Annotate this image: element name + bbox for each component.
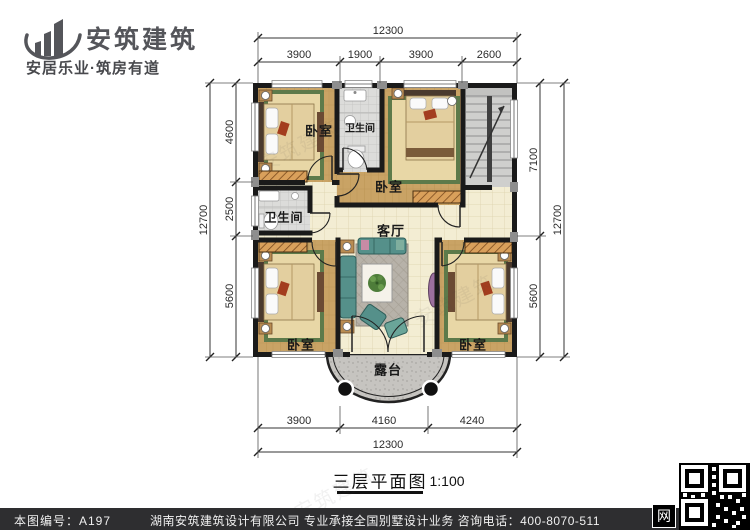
wardrobe (259, 241, 307, 252)
qr-code (679, 463, 750, 530)
bed-bottom-left (258, 250, 324, 340)
room-label-terrace: 露台 (374, 360, 402, 379)
dim-top-seg-2: 1900 (348, 49, 372, 61)
footer-drawing-number: 本图编号：A197 (14, 512, 111, 529)
dim-top-total: 12300 (373, 25, 404, 37)
dim-bottom-seg-3: 4240 (460, 415, 484, 427)
room-label-bathroom-top: 卫生间 (345, 120, 375, 135)
dim-top-seg-1: 3900 (287, 49, 311, 61)
dim-right-seg-1: 7100 (528, 148, 540, 172)
dim-left-seg-1: 4600 (224, 120, 236, 144)
dim-bottom-seg-2: 4160 (372, 415, 396, 427)
wardrobe (413, 191, 461, 203)
dim-left-total: 12700 (198, 205, 210, 236)
bed-middle (390, 88, 458, 182)
footer-company-line: 湖南安筑建筑设计有限公司 专业承接全国别墅设计业务 咨询电话：400-8070-… (150, 512, 600, 529)
dim-top-seg-4: 2600 (477, 49, 501, 61)
room-label-bedroom-middle: 卧室 (375, 177, 403, 196)
dim-left-seg-2: 2500 (224, 197, 236, 221)
dim-right-seg-2: 5600 (528, 284, 540, 308)
dim-bottom-seg-1: 3900 (287, 415, 311, 427)
room-label-bathroom-left: 卫生间 (264, 209, 303, 226)
dim-top-seg-3: 3900 (409, 49, 433, 61)
plan-scale: 1:100 (429, 473, 464, 489)
wardrobe (465, 241, 512, 253)
room-label-living-room: 客厅 (377, 221, 405, 240)
dim-right-total: 12700 (552, 205, 564, 236)
room-label-bedroom-bottom-right: 卧室 (459, 335, 487, 354)
room-label-bedroom-bottom-left: 卧室 (287, 335, 315, 354)
terrace-column (423, 381, 439, 397)
terrace-column (337, 381, 353, 397)
dim-left-seg-3: 5600 (224, 284, 236, 308)
dim-bottom-total: 12300 (373, 439, 404, 451)
web-badge: 网 (652, 504, 676, 528)
